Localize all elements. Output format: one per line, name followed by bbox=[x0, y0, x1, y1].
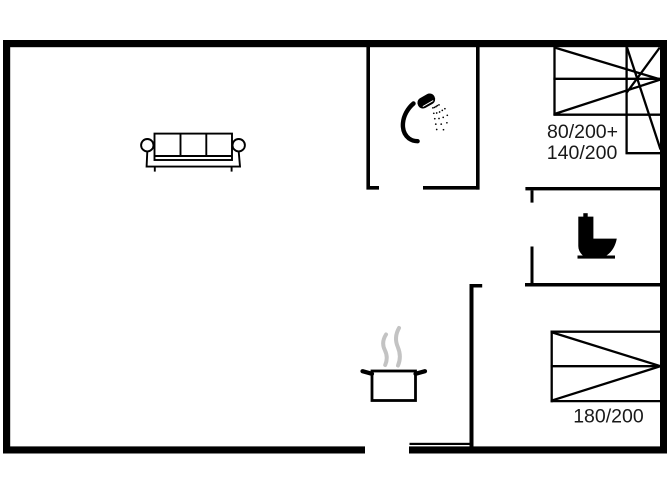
svg-text:180/200: 180/200 bbox=[573, 405, 644, 427]
svg-text:80/200+: 80/200+ bbox=[547, 121, 618, 143]
svg-text:140/200: 140/200 bbox=[547, 142, 618, 164]
